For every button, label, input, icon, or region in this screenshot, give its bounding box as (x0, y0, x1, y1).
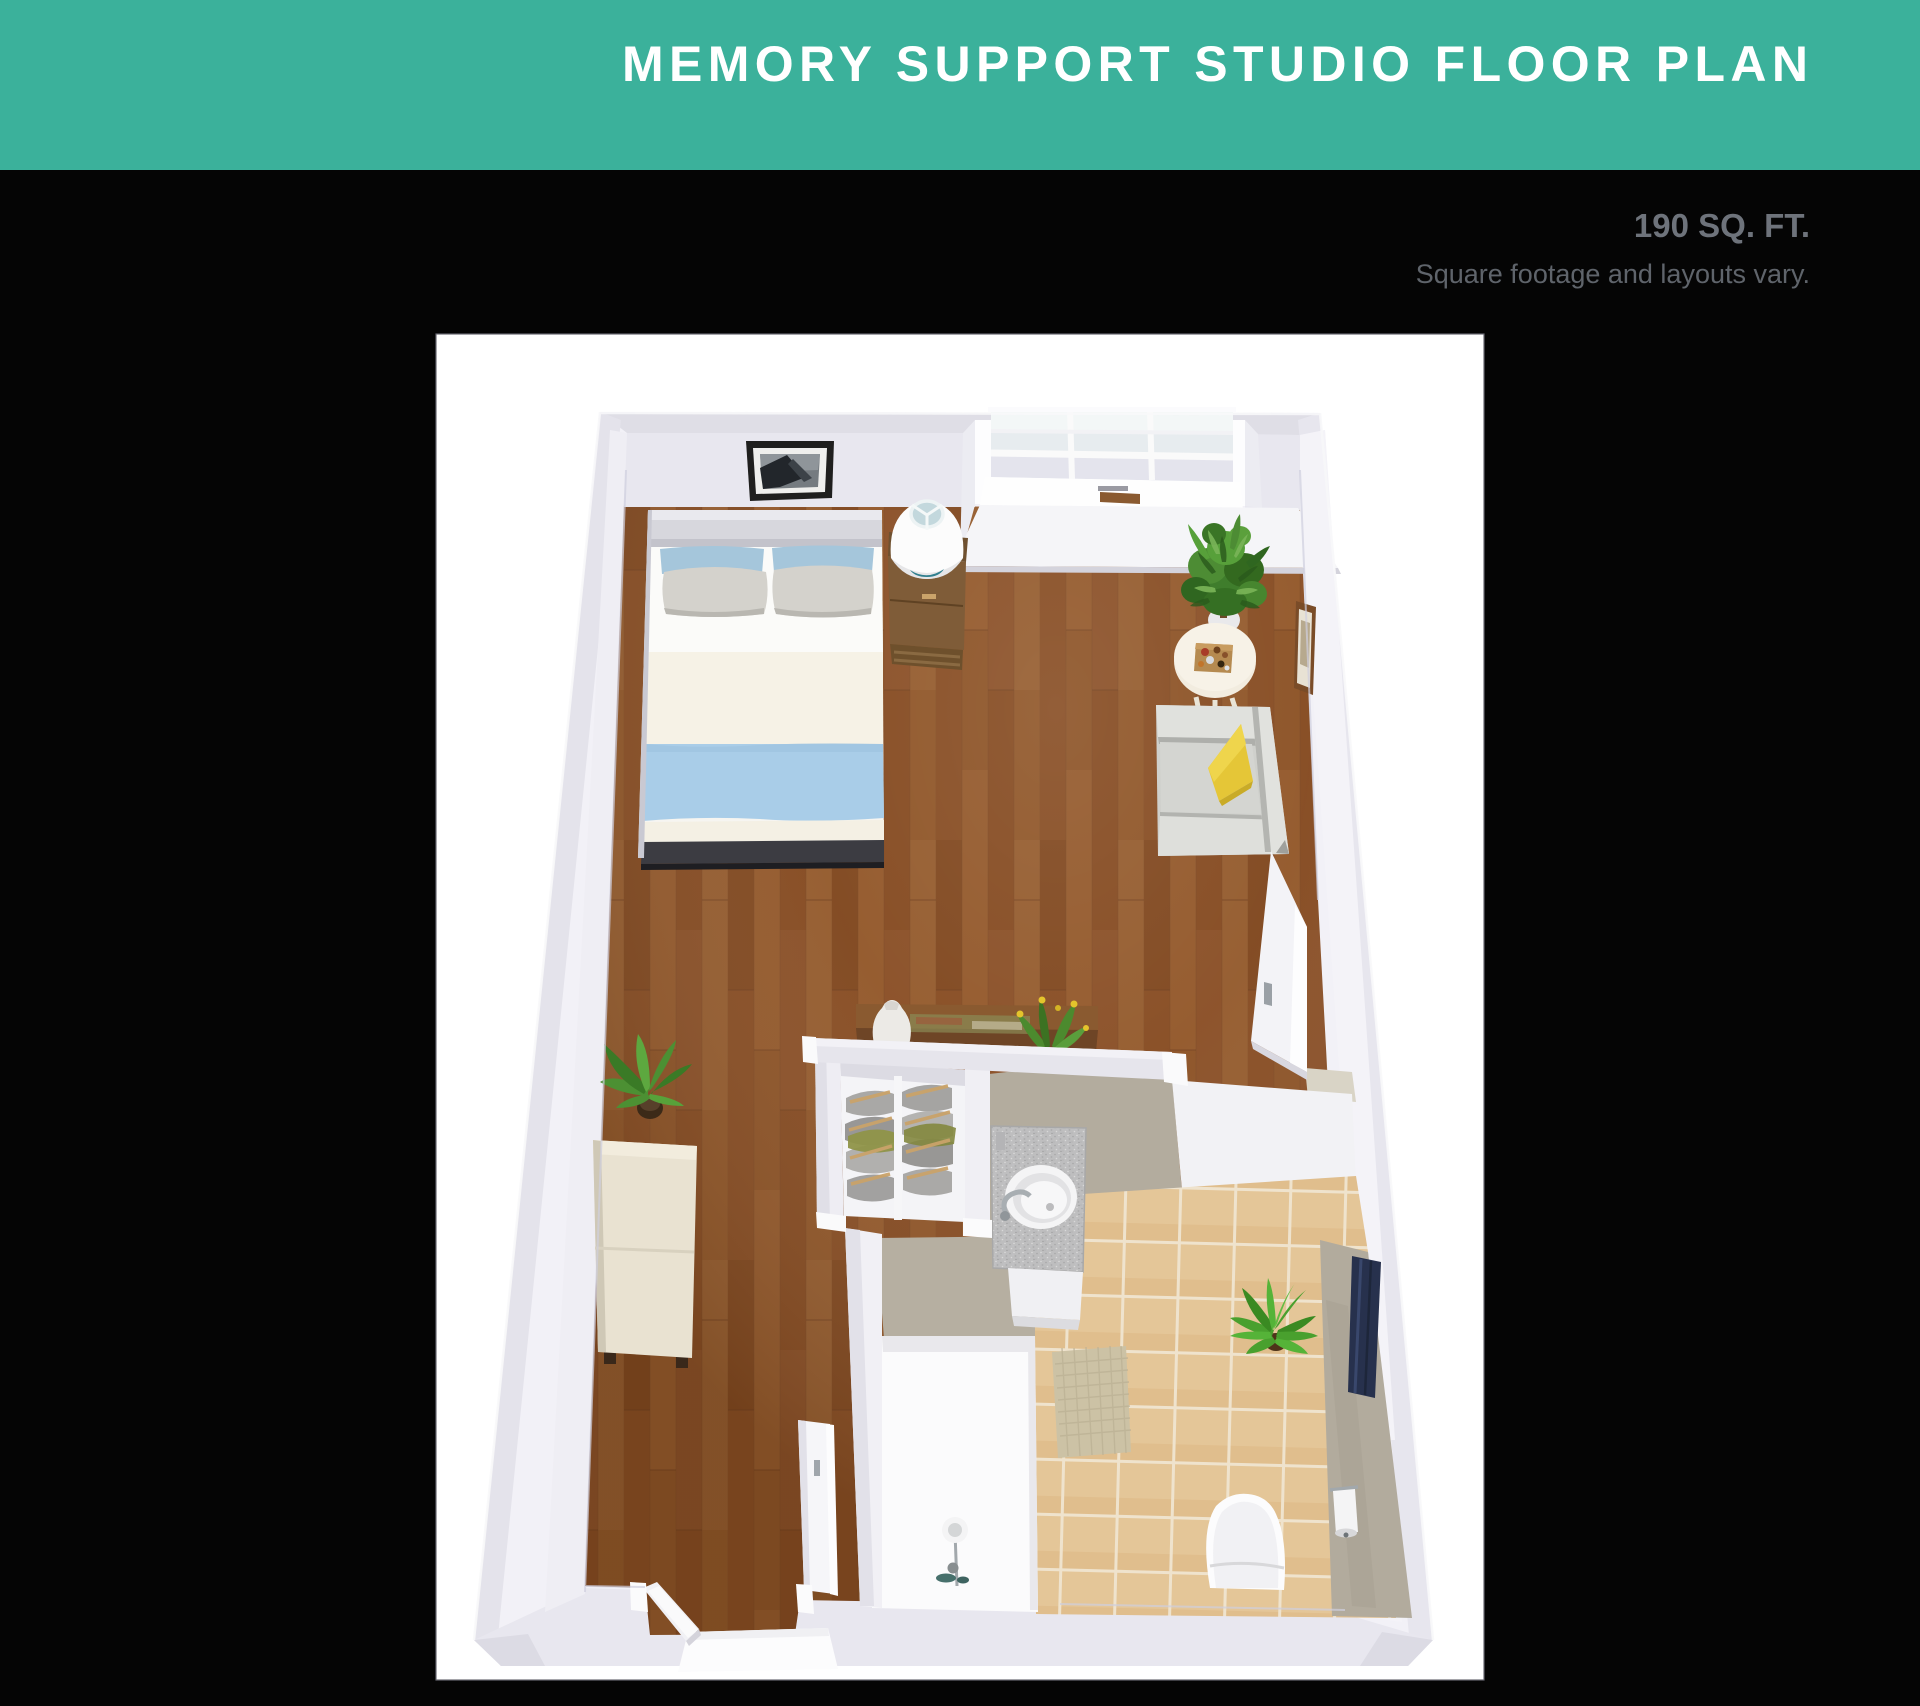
svg-text:MEMORY SUPPORT STUDIO FLOOR PL: MEMORY SUPPORT STUDIO FLOOR PLAN (622, 36, 1808, 92)
svg-text:Square footage and layouts var: Square footage and layouts vary. (1416, 259, 1810, 289)
svg-text:190 SQ. FT.: 190 SQ. FT. (1634, 207, 1810, 244)
